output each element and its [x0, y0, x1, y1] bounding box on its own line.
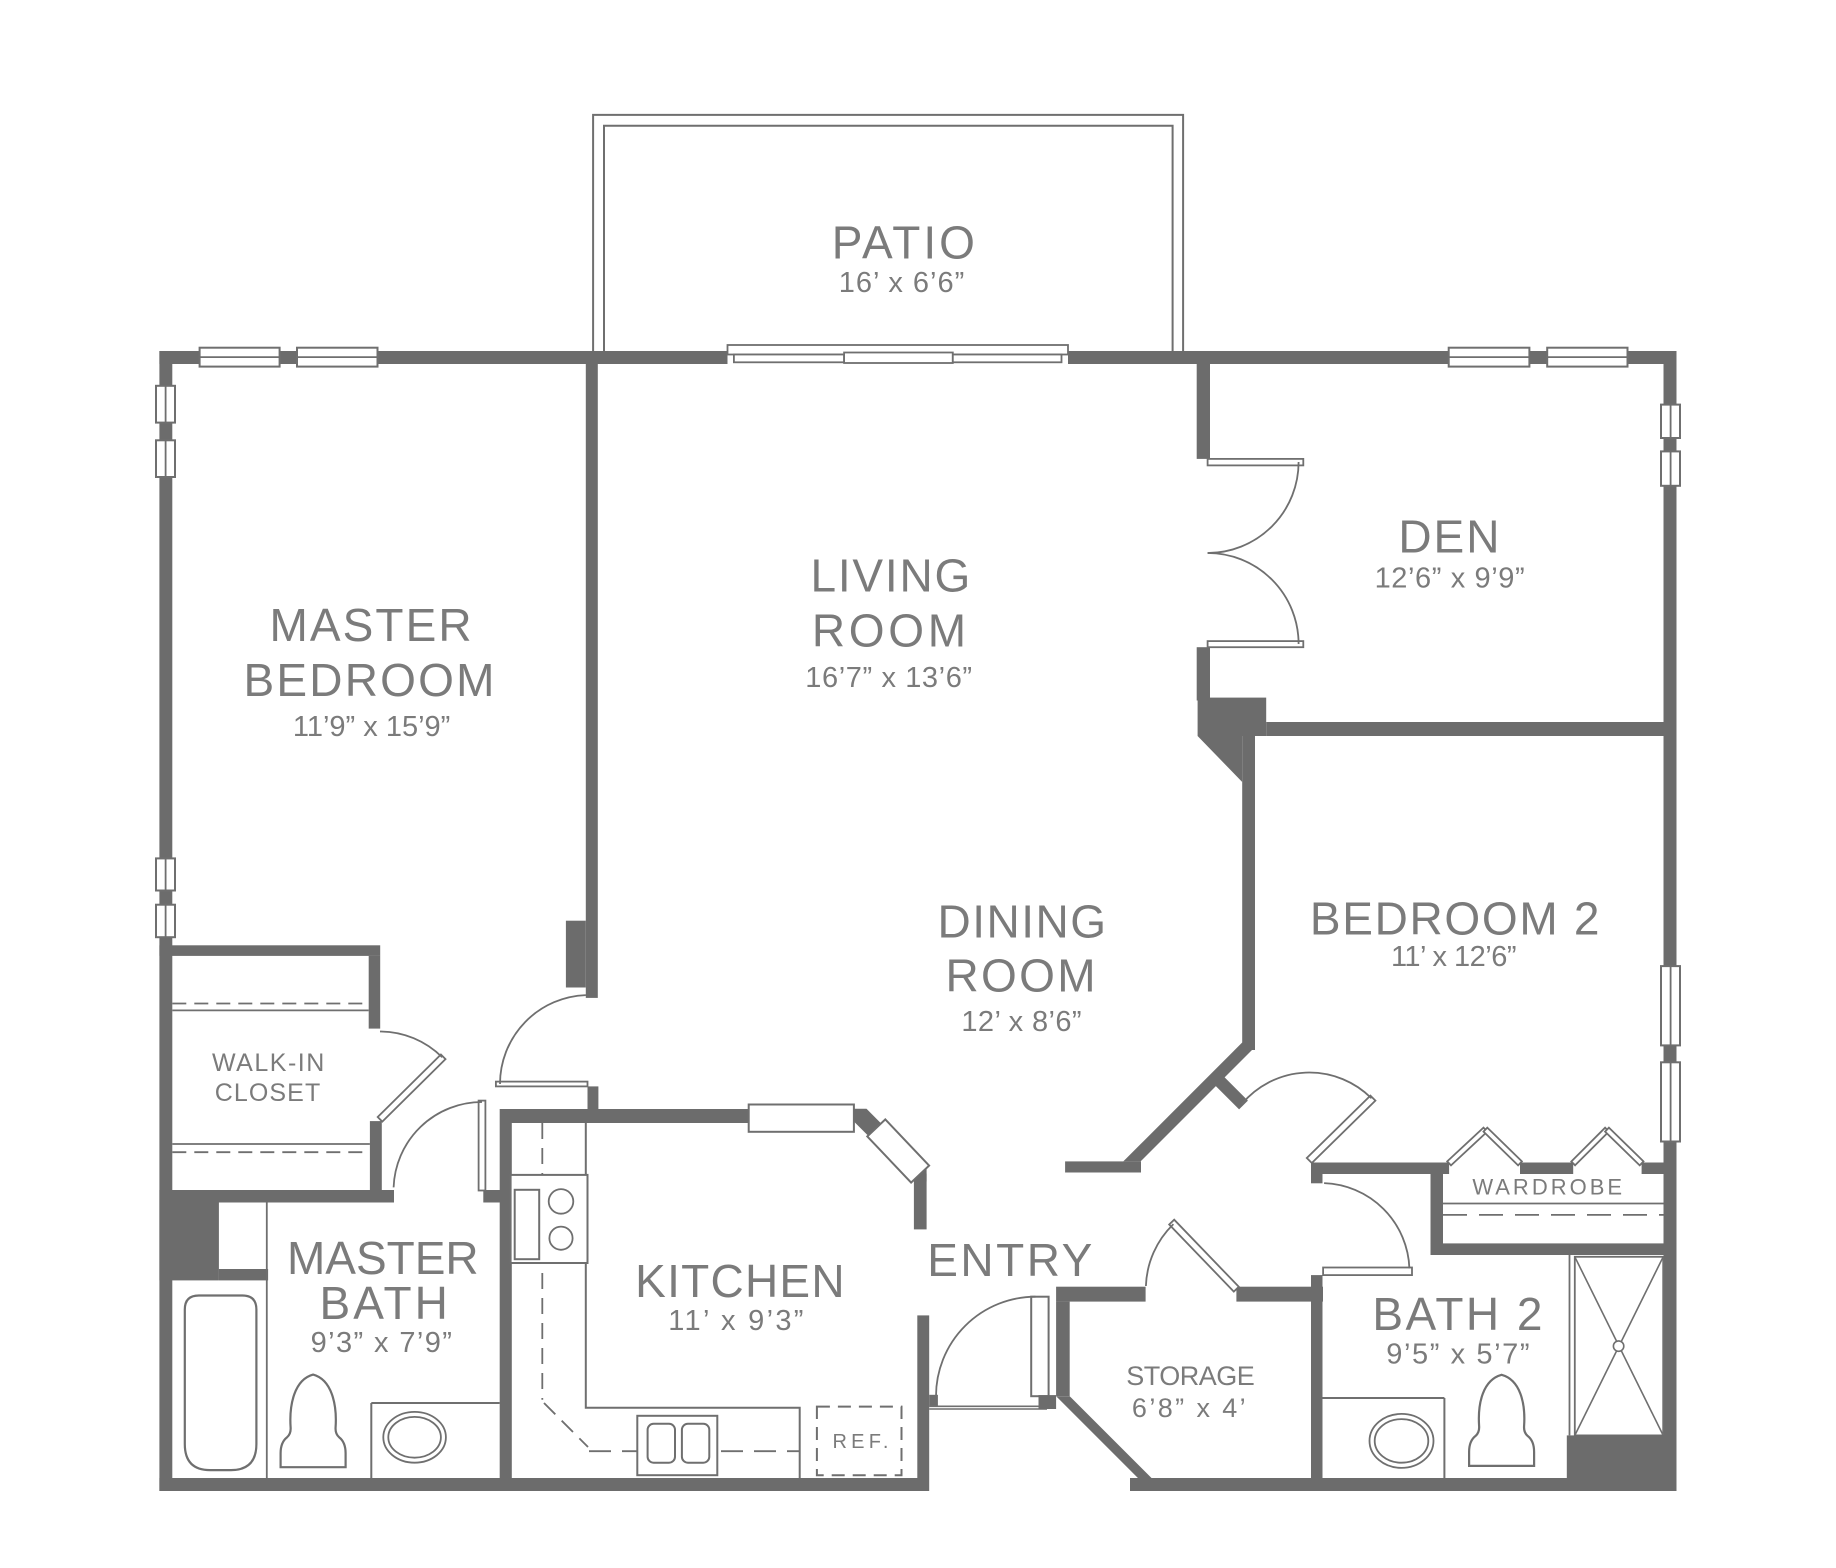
svg-text:DINING: DINING — [938, 896, 1108, 948]
svg-text:BEDROOM: BEDROOM — [244, 654, 497, 706]
svg-text:11’ x 12’6”: 11’ x 12’6” — [1391, 941, 1516, 973]
svg-text:12’ x 8’6”: 12’ x 8’6” — [961, 1006, 1082, 1038]
svg-text:16’ x 6’6”: 16’ x 6’6” — [839, 267, 966, 299]
svg-text:ROOM: ROOM — [946, 950, 1098, 1002]
svg-text:12’6” x 9’9”: 12’6” x 9’9” — [1375, 563, 1526, 595]
svg-text:11’9” x 15’9”: 11’9” x 15’9” — [293, 711, 450, 743]
svg-text:REF.: REF. — [833, 1431, 893, 1453]
svg-text:9’5” x 5’7”: 9’5” x 5’7” — [1386, 1339, 1531, 1371]
svg-text:9’3” x 7’9”: 9’3” x 7’9” — [311, 1327, 454, 1359]
svg-text:WARDROBE: WARDROBE — [1472, 1175, 1625, 1200]
svg-text:STORAGE: STORAGE — [1126, 1361, 1254, 1391]
svg-text:CLOSET: CLOSET — [215, 1079, 322, 1107]
svg-text:PATIO: PATIO — [832, 217, 978, 269]
svg-text:KITCHEN: KITCHEN — [635, 1255, 846, 1307]
svg-text:16’7” x 13’6”: 16’7” x 13’6” — [805, 662, 972, 694]
svg-text:MASTER: MASTER — [269, 599, 473, 651]
svg-text:ROOM: ROOM — [812, 605, 970, 657]
svg-text:LIVING: LIVING — [810, 550, 972, 602]
svg-text:WALK-IN: WALK-IN — [212, 1049, 326, 1077]
svg-text:ENTRY: ENTRY — [927, 1234, 1095, 1286]
svg-text:11’ x 9’3”: 11’ x 9’3” — [668, 1305, 805, 1337]
svg-text:BATH 2: BATH 2 — [1372, 1288, 1545, 1340]
svg-text:BEDROOM 2: BEDROOM 2 — [1310, 893, 1601, 945]
svg-text:6’8” x 4’: 6’8” x 4’ — [1132, 1393, 1248, 1423]
svg-text:BATH: BATH — [320, 1277, 451, 1329]
svg-text:DEN: DEN — [1398, 511, 1501, 563]
